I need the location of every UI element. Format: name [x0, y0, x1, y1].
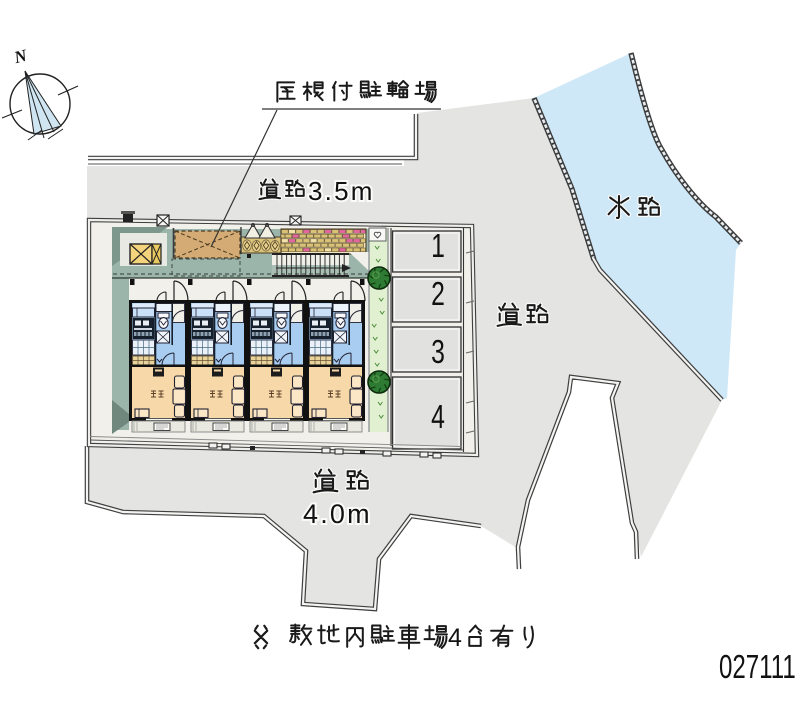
svg-text:4.0m: 4.0m: [303, 499, 372, 529]
svg-text:4: 4: [431, 400, 445, 436]
svg-text:4: 4: [448, 624, 462, 652]
svg-text:3.5m: 3.5m: [308, 176, 375, 206]
svg-text:1: 1: [431, 229, 445, 265]
svg-text:2: 2: [431, 277, 445, 313]
svg-text:027111: 027111: [719, 649, 796, 686]
svg-text:3: 3: [431, 335, 445, 371]
